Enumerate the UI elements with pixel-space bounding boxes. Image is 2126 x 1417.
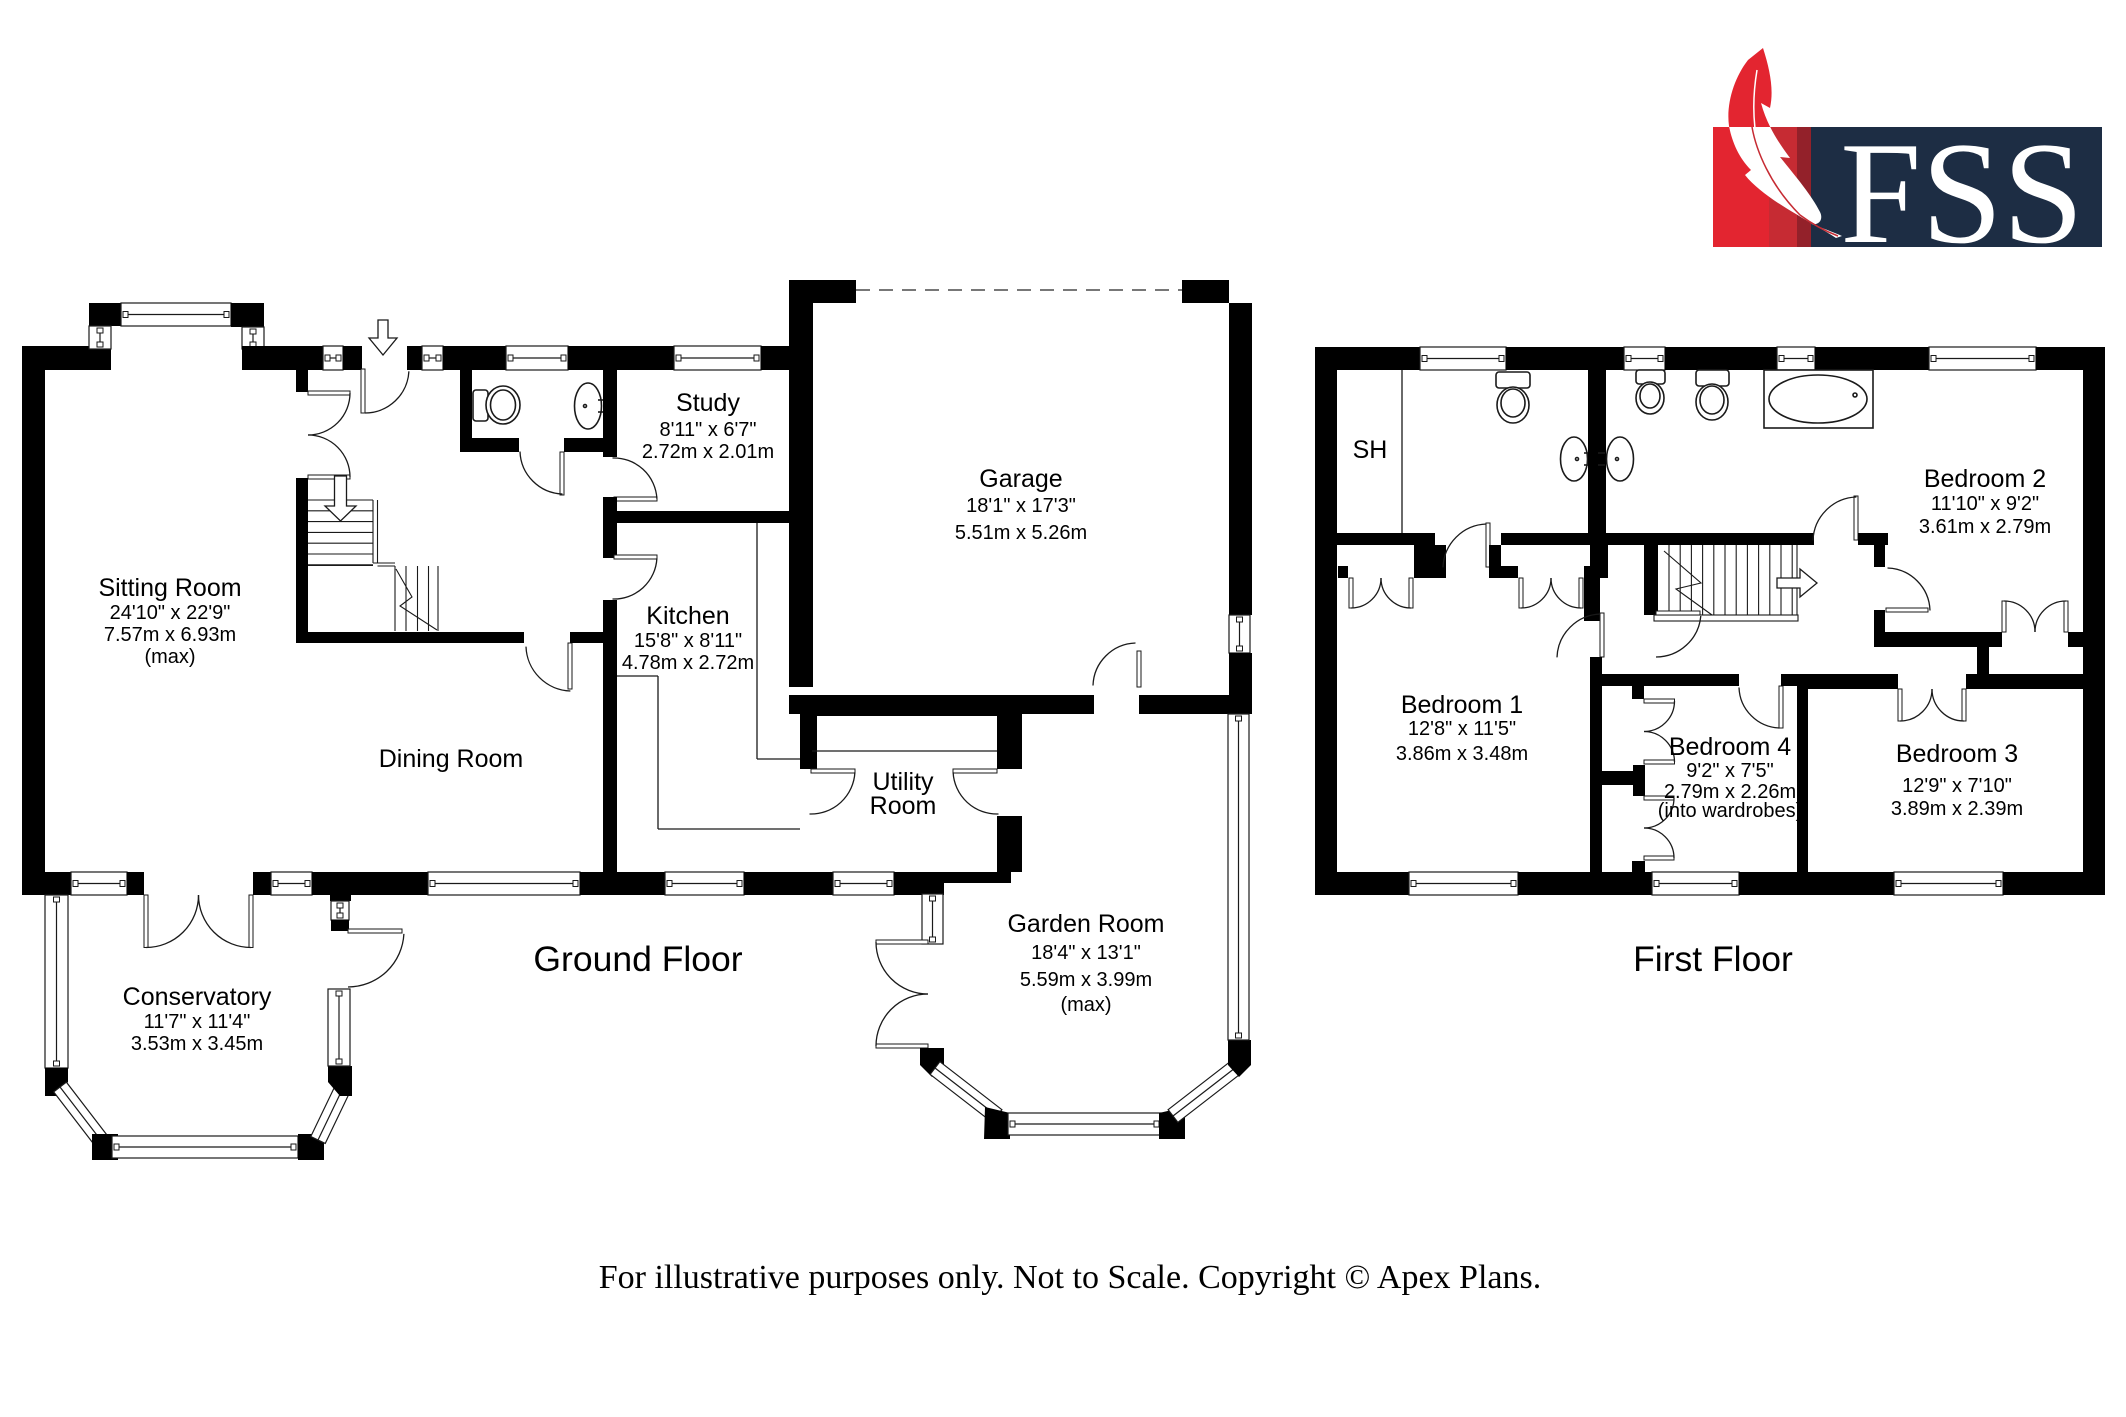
svg-text:Garden Room: Garden Room <box>1007 910 1164 938</box>
svg-text:Bedroom 3: Bedroom 3 <box>1896 740 2018 768</box>
svg-text:Ground Floor: Ground Floor <box>533 939 742 979</box>
svg-text:Study: Study <box>676 389 740 417</box>
svg-text:(max): (max) <box>144 646 195 668</box>
svg-text:FSS: FSS <box>1840 112 2084 274</box>
svg-text:11'10" x 9'2": 11'10" x 9'2" <box>1931 493 2039 515</box>
svg-text:Sitting Room: Sitting Room <box>98 574 241 602</box>
svg-text:15'8" x 8'11": 15'8" x 8'11" <box>634 630 742 652</box>
svg-text:Room: Room <box>870 792 937 820</box>
svg-text:SH: SH <box>1353 436 1388 464</box>
svg-text:Dining Room: Dining Room <box>379 745 524 773</box>
svg-text:2.72m x 2.01m: 2.72m x 2.01m <box>642 441 774 463</box>
svg-text:12'8" x 11'5": 12'8" x 11'5" <box>1408 718 1516 740</box>
svg-text:12'9" x 7'10": 12'9" x 7'10" <box>1902 775 2012 797</box>
svg-text:11'7" x 11'4": 11'7" x 11'4" <box>144 1011 251 1033</box>
svg-text:8'11" x 6'7": 8'11" x 6'7" <box>659 419 756 441</box>
svg-text:7.57m x 6.93m: 7.57m x 6.93m <box>104 624 236 646</box>
svg-text:9'2" x 7'5": 9'2" x 7'5" <box>1686 760 1773 782</box>
svg-text:5.59m x 3.99m: 5.59m x 3.99m <box>1020 969 1152 991</box>
svg-text:Bedroom 1: Bedroom 1 <box>1401 691 1523 719</box>
svg-text:3.89m x 2.39m: 3.89m x 2.39m <box>1891 798 2023 820</box>
svg-text:3.53m x 3.45m: 3.53m x 3.45m <box>131 1033 263 1055</box>
svg-text:24'10" x 22'9": 24'10" x 22'9" <box>110 602 231 624</box>
svg-text:(into wardrobes): (into wardrobes) <box>1658 800 1803 822</box>
svg-text:3.61m x 2.79m: 3.61m x 2.79m <box>1919 516 2051 538</box>
svg-text:First Floor: First Floor <box>1633 939 1793 979</box>
svg-text:Bedroom 4: Bedroom 4 <box>1669 733 1791 761</box>
svg-text:For illustrative purposes only: For illustrative purposes only. Not to S… <box>599 1259 1542 1296</box>
svg-text:3.86m x 3.48m: 3.86m x 3.48m <box>1396 743 1528 765</box>
svg-text:Bedroom 2: Bedroom 2 <box>1924 465 2046 493</box>
svg-text:18'4" x 13'1": 18'4" x 13'1" <box>1031 942 1141 964</box>
svg-text:4.78m x 2.72m: 4.78m x 2.72m <box>622 652 754 674</box>
svg-text:18'1" x 17'3": 18'1" x 17'3" <box>966 495 1076 517</box>
svg-text:Kitchen: Kitchen <box>646 602 729 630</box>
svg-text:5.51m x 5.26m: 5.51m x 5.26m <box>955 522 1087 544</box>
svg-text:Conservatory: Conservatory <box>123 983 272 1011</box>
svg-text:Garage: Garage <box>979 465 1062 493</box>
svg-text:(max): (max) <box>1060 994 1111 1016</box>
